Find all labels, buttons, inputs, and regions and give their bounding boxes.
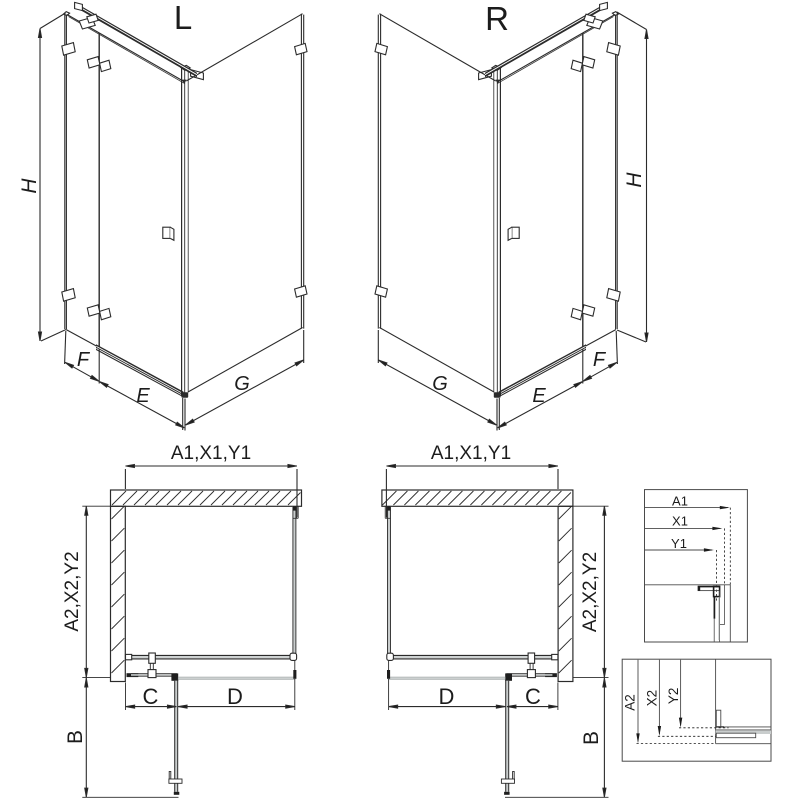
svg-text:C: C	[143, 684, 159, 709]
svg-text:A2,X2,Y2: A2,X2,Y2	[62, 551, 83, 631]
svg-text:E: E	[532, 385, 546, 407]
svg-text:F: F	[77, 349, 91, 371]
svg-text:X2: X2	[644, 690, 659, 707]
svg-text:H: H	[18, 178, 41, 194]
svg-text:A2: A2	[623, 694, 638, 711]
svg-text:R: R	[485, 0, 509, 37]
svg-text:G: G	[432, 373, 448, 395]
svg-text:F: F	[593, 349, 607, 371]
svg-text:D: D	[227, 684, 243, 709]
svg-text:G: G	[234, 373, 250, 395]
svg-text:B: B	[64, 730, 87, 744]
svg-text:H: H	[623, 172, 646, 188]
svg-text:E: E	[136, 385, 150, 407]
svg-text:A1,X1,Y1: A1,X1,Y1	[171, 443, 251, 464]
svg-text:Y2: Y2	[666, 688, 681, 705]
svg-text:A2,X2,Y2: A2,X2,Y2	[580, 552, 601, 632]
svg-text:A1,X1,Y1: A1,X1,Y1	[431, 443, 511, 464]
svg-text:A1: A1	[672, 494, 688, 509]
svg-text:Y1: Y1	[671, 536, 687, 551]
svg-text:B: B	[580, 731, 603, 745]
svg-text:D: D	[439, 684, 455, 709]
svg-text:C: C	[525, 684, 541, 709]
svg-text:X1: X1	[672, 514, 688, 529]
svg-text:L: L	[174, 0, 192, 36]
